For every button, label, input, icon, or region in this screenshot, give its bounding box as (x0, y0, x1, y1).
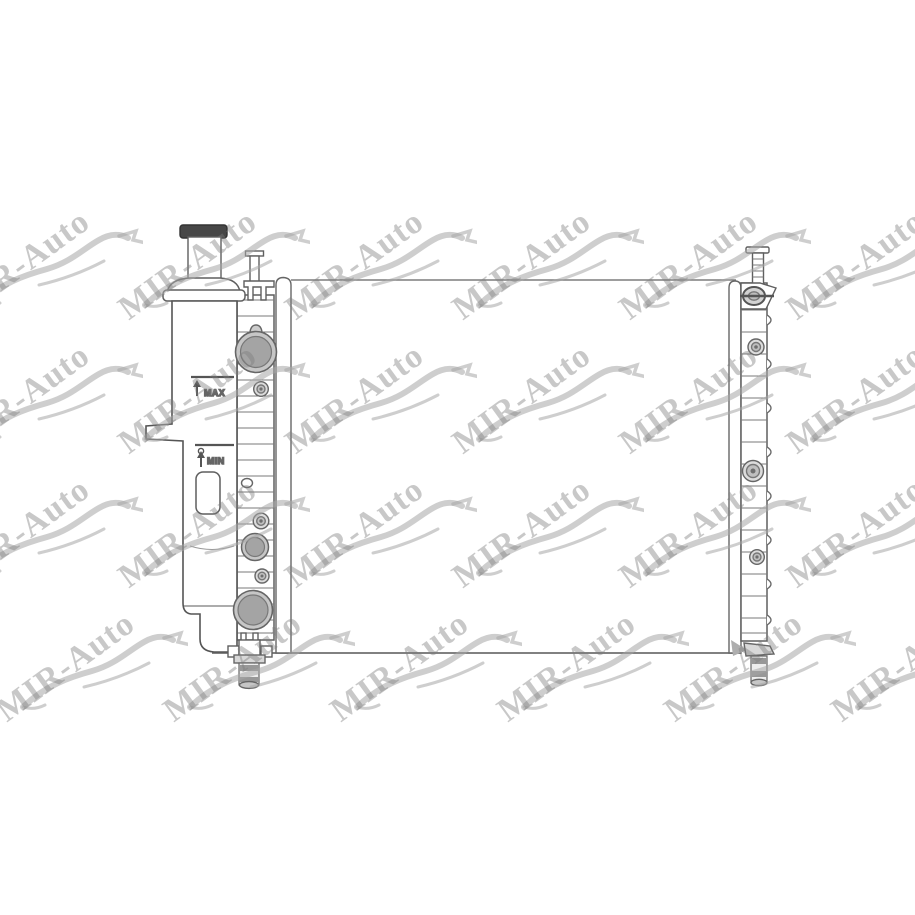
radiator-cap (180, 225, 227, 238)
stud-rod (753, 253, 764, 284)
drain-band-1 (239, 665, 259, 671)
right-side-channel (729, 281, 741, 653)
left-side-channel (276, 278, 291, 654)
drain-plug-right (731, 640, 774, 686)
min-label: MIN (207, 456, 225, 466)
bolt-left-middle (253, 513, 269, 529)
side-nub (242, 479, 253, 488)
mounting-stud-top-right (746, 247, 769, 284)
bolt-right-middle (743, 461, 764, 482)
stud-cap (746, 247, 769, 253)
overflow-tube (244, 251, 274, 300)
tank-flange (163, 290, 245, 301)
drain-tip (240, 682, 259, 689)
max-label: MAX (204, 388, 225, 398)
bolt-left-lower (255, 569, 269, 583)
vent-tube-cap (246, 251, 264, 256)
tank-body (146, 301, 237, 652)
vent-tube (250, 256, 259, 282)
level-window (196, 472, 220, 514)
port-middle (242, 534, 269, 561)
drain-collar (744, 643, 774, 656)
bolt-right-upper (748, 339, 764, 355)
expansion-tank: MAX MIN (146, 225, 245, 652)
drain-band-1 (751, 658, 767, 664)
radiator-line-drawing: MAX MIN (0, 0, 915, 915)
product-image-canvas: MAX MIN (0, 0, 915, 915)
drain-tip (751, 679, 767, 685)
mounting-eyelet-right (740, 283, 776, 309)
bolt-right-lower (750, 550, 765, 565)
drain-band-2 (751, 671, 767, 677)
filler-neck (188, 237, 221, 281)
drain-collar (234, 655, 265, 663)
outlet-port-lower (234, 591, 273, 630)
bolt-left-upper (254, 382, 269, 397)
